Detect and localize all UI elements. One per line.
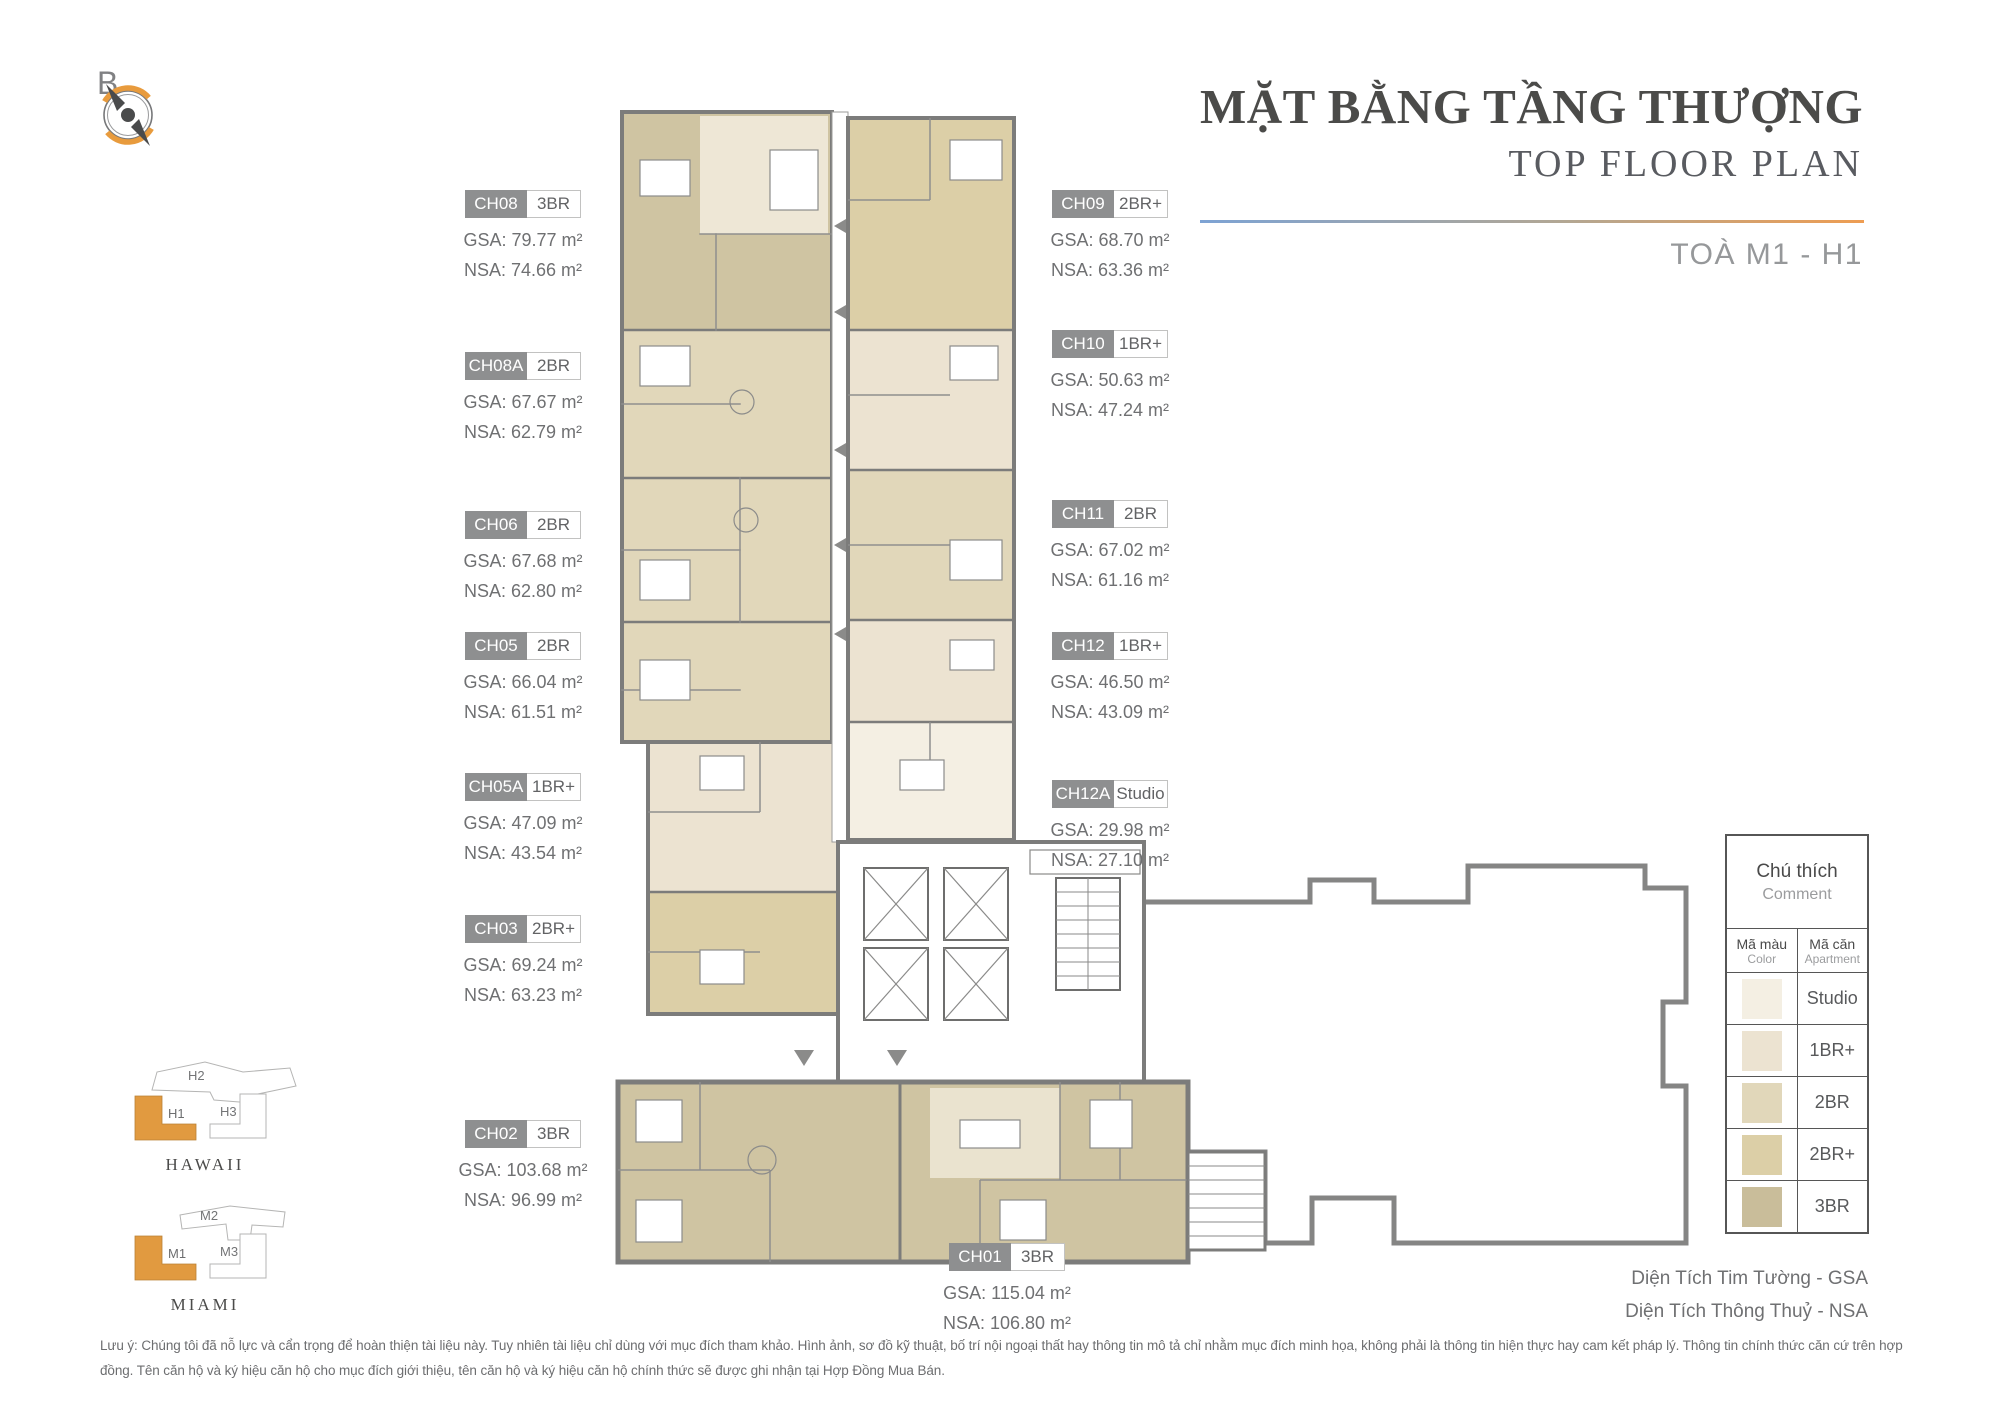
unit-gsa: GSA: 69.24 m²: [443, 950, 603, 980]
unit-code: CH08A: [465, 352, 527, 380]
unit-type: 1BR+: [1114, 330, 1168, 358]
unit-gsa: GSA: 67.02 m²: [1030, 535, 1190, 565]
unit-badge: CH06 2BR: [465, 511, 581, 539]
unit-label-ch05a: CH05A 1BR+ GSA: 47.09 m² NSA: 43.54 m²: [443, 773, 603, 868]
unit-code: CH12A: [1052, 780, 1114, 808]
unit-type: 3BR: [527, 190, 581, 218]
unit-badge: CH10 1BR+: [1052, 330, 1168, 358]
unit-badge: CH09 2BR+: [1052, 190, 1168, 218]
legend-row-studio: Studio: [1727, 973, 1867, 1025]
unit-gsa: GSA: 67.68 m²: [443, 546, 603, 576]
unit-badge: CH01 3BR: [949, 1243, 1065, 1271]
gsa-definition: Diện Tích Tim Tường - GSA: [1625, 1262, 1868, 1295]
legend-label: 2BR+: [1798, 1129, 1868, 1180]
unit-code: CH09: [1052, 190, 1114, 218]
unit-label-ch08a: CH08A 2BR GSA: 67.67 m² NSA: 62.79 m²: [443, 352, 603, 447]
unit-type: 2BR: [527, 511, 581, 539]
unit-nsa: NSA: 43.54 m²: [443, 838, 603, 868]
unit-nsa: NSA: 62.79 m²: [443, 417, 603, 447]
unit-code: CH03: [465, 915, 527, 943]
svg-text:H1: H1: [168, 1106, 185, 1121]
legend-label: 1BR+: [1798, 1025, 1868, 1076]
unit-type: 1BR+: [1114, 632, 1168, 660]
area-definitions: Diện Tích Tim Tường - GSA Diện Tích Thôn…: [1625, 1262, 1868, 1328]
svg-text:H2: H2: [188, 1068, 205, 1083]
unit-nsa: NSA: 63.36 m²: [1030, 255, 1190, 285]
legend-label: 2BR: [1798, 1077, 1868, 1128]
unit-badge: CH08A 2BR: [465, 352, 581, 380]
nsa-definition: Diện Tích Thông Thuỷ - NSA: [1625, 1295, 1868, 1328]
unit-nsa: NSA: 74.66 m²: [443, 255, 603, 285]
disclaimer-text: Lưu ý: Chúng tôi đã nỗ lực và cẩn trọng …: [100, 1333, 1915, 1383]
building-m2-outline: [180, 1206, 285, 1240]
unit-code: CH05A: [465, 773, 527, 801]
unit-type: 2BR+: [527, 915, 581, 943]
legend-col-color: Mã màu Color: [1727, 929, 1798, 972]
unit-code: CH10: [1052, 330, 1114, 358]
unit-gsa: GSA: 67.67 m²: [443, 387, 603, 417]
unit-nsa: NSA: 47.24 m²: [1030, 395, 1190, 425]
unit-type: 2BR+: [1114, 190, 1168, 218]
site-minimap: H2 H1 H3 HAWAII M2 M1 M3 MIAMI: [95, 1050, 315, 1320]
unit-badge: CH03 2BR+: [465, 915, 581, 943]
unit-gsa: GSA: 66.04 m²: [443, 667, 603, 697]
unit-nsa: NSA: 43.09 m²: [1030, 697, 1190, 727]
unit-code: CH06: [465, 511, 527, 539]
unit-badge: CH12 1BR+: [1052, 632, 1168, 660]
legend-row-1brp: 1BR+: [1727, 1025, 1867, 1077]
building-h1-highlight: [135, 1096, 196, 1140]
color-swatch: [1742, 1187, 1782, 1227]
unit-type: 2BR: [1114, 500, 1168, 528]
unit-label-ch01: CH01 3BR GSA: 115.04 m² NSA: 106.80 m²: [927, 1243, 1087, 1338]
outside-stair: [1188, 1152, 1265, 1250]
unit-gsa: GSA: 46.50 m²: [1030, 667, 1190, 697]
unit-badge: CH05 2BR: [465, 632, 581, 660]
unit-label-ch10: CH10 1BR+ GSA: 50.63 m² NSA: 47.24 m²: [1030, 330, 1190, 425]
unit-gsa: GSA: 47.09 m²: [443, 808, 603, 838]
unit-badge: CH12A Studio: [1052, 780, 1168, 808]
color-swatch: [1742, 1135, 1782, 1175]
legend-label: 3BR: [1798, 1181, 1868, 1232]
unit-nsa: NSA: 61.16 m²: [1030, 565, 1190, 595]
svg-text:M3: M3: [220, 1244, 238, 1259]
unit-gsa: GSA: 68.70 m²: [1030, 225, 1190, 255]
legend-title-vi: Chú thích: [1756, 861, 1837, 883]
unit-gsa: GSA: 50.63 m²: [1030, 365, 1190, 395]
building-m1-highlight: [135, 1236, 196, 1280]
legend-col-apartment: Mã căn Apartment: [1798, 929, 1868, 972]
unit-nsa: NSA: 62.80 m²: [443, 576, 603, 606]
color-swatch: [1742, 979, 1782, 1019]
unit-type: 3BR: [1011, 1243, 1065, 1271]
svg-text:H3: H3: [220, 1104, 237, 1119]
unit-type: 1BR+: [527, 773, 581, 801]
legend-column-headers: Mã màu Color Mã căn Apartment: [1727, 929, 1867, 973]
unit-gsa: GSA: 103.68 m²: [443, 1155, 603, 1185]
legend-header: Chú thích Comment: [1727, 836, 1867, 929]
unit-gsa: GSA: 79.77 m²: [443, 225, 603, 255]
unit-label-ch06: CH06 2BR GSA: 67.68 m² NSA: 62.80 m²: [443, 511, 603, 606]
unit-badge: CH11 2BR: [1052, 500, 1168, 528]
unit-type: 2BR: [527, 352, 581, 380]
unit-code: CH08: [465, 190, 527, 218]
unit-type: 3BR: [527, 1120, 581, 1148]
miami-cluster: M2 M1 M3 MIAMI: [135, 1206, 285, 1314]
unit-code: CH05: [465, 632, 527, 660]
unit-label-ch02: CH02 3BR GSA: 103.68 m² NSA: 96.99 m²: [443, 1120, 603, 1215]
unit-label-ch05: CH05 2BR GSA: 66.04 m² NSA: 61.51 m²: [443, 632, 603, 727]
svg-text:M1: M1: [168, 1246, 186, 1261]
hawaii-label: HAWAII: [166, 1155, 245, 1174]
unit-badge: CH08 3BR: [465, 190, 581, 218]
legend: Chú thích Comment Mã màu Color Mã căn Ap…: [1725, 834, 1869, 1234]
unit-label-ch08: CH08 3BR GSA: 79.77 m² NSA: 74.66 m²: [443, 190, 603, 285]
compass-icon: B: [85, 50, 205, 170]
color-swatch: [1742, 1031, 1782, 1071]
unit-type: 2BR: [527, 632, 581, 660]
unit-nsa: NSA: 96.99 m²: [443, 1185, 603, 1215]
unit-code: CH11: [1052, 500, 1114, 528]
miami-label: MIAMI: [171, 1295, 240, 1314]
unit-label-ch12: CH12 1BR+ GSA: 46.50 m² NSA: 43.09 m²: [1030, 632, 1190, 727]
unit-nsa: NSA: 61.51 m²: [443, 697, 603, 727]
unit-label-ch11: CH11 2BR GSA: 67.02 m² NSA: 61.16 m²: [1030, 500, 1190, 595]
unit-gsa: GSA: 115.04 m²: [927, 1278, 1087, 1308]
legend-row-2br: 2BR: [1727, 1077, 1867, 1129]
unit-label-ch03: CH03 2BR+ GSA: 69.24 m² NSA: 63.23 m²: [443, 915, 603, 1010]
legend-row-3br: 3BR: [1727, 1181, 1867, 1232]
unit-badge: CH05A 1BR+: [465, 773, 581, 801]
tower-right-units: [848, 118, 1014, 840]
elevator-core: [838, 842, 1144, 1092]
legend-row-2brp: 2BR+: [1727, 1129, 1867, 1181]
unit-nsa: NSA: 63.23 m²: [443, 980, 603, 1010]
color-swatch: [1742, 1083, 1782, 1123]
unit-code: CH02: [465, 1120, 527, 1148]
unit-badge: CH02 3BR: [465, 1120, 581, 1148]
unit-type: Studio: [1114, 780, 1168, 808]
unit-code: CH01: [949, 1243, 1011, 1271]
floor-plan-page: B MẶT BẰNG TẦNG THƯỢNG TOP FLOOR PLAN TO…: [0, 0, 2000, 1414]
building-h2-outline: [152, 1062, 296, 1103]
legend-title-en: Comment: [1762, 886, 1831, 904]
unit-label-ch12a: CH12A Studio GSA: 29.98 m² NSA: 27.10 m²: [1030, 780, 1190, 875]
legend-label: Studio: [1798, 973, 1868, 1024]
svg-text:M2: M2: [200, 1208, 218, 1223]
unit-code: CH12: [1052, 632, 1114, 660]
unit-gsa: GSA: 29.98 m²: [1030, 815, 1190, 845]
unit-nsa: NSA: 27.10 m²: [1030, 845, 1190, 875]
hawaii-cluster: H2 H1 H3 HAWAII: [135, 1062, 296, 1174]
unit-label-ch09: CH09 2BR+ GSA: 68.70 m² NSA: 63.36 m²: [1030, 190, 1190, 285]
